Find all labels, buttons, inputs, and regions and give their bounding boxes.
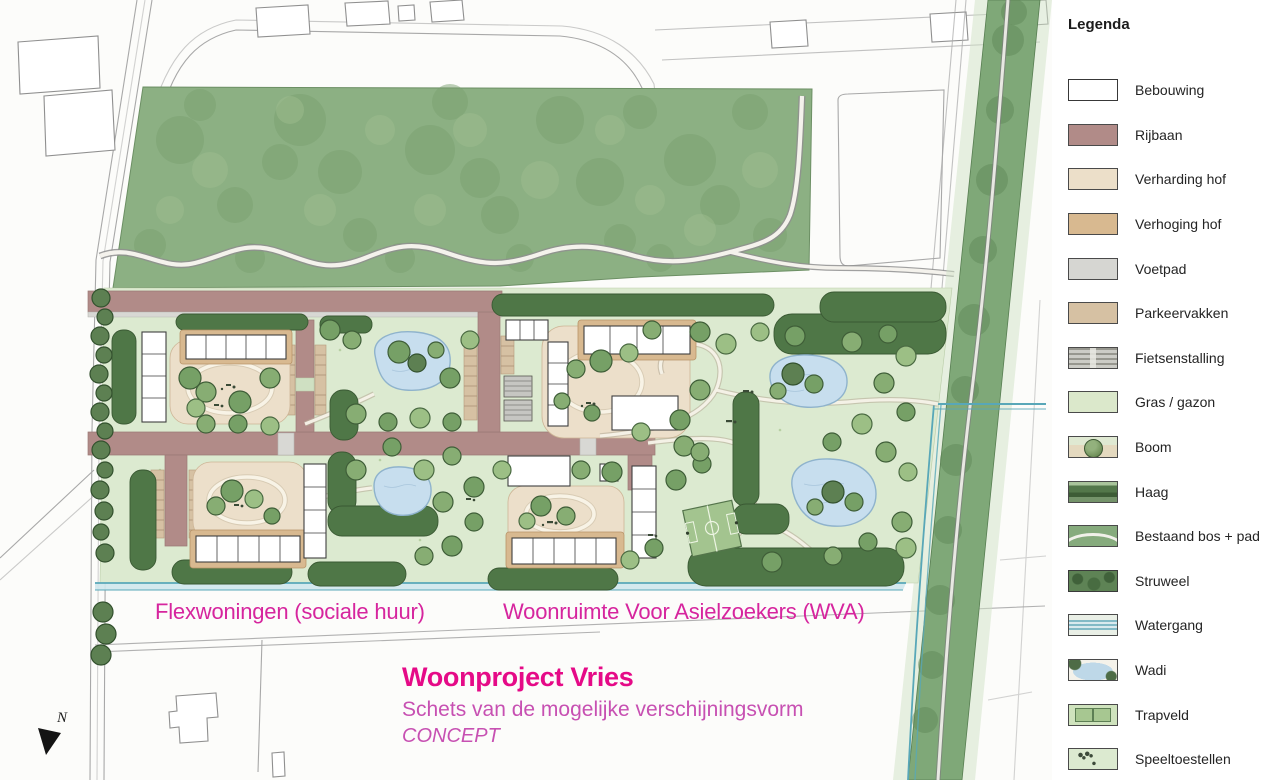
legend-swatch-wadi — [1068, 659, 1118, 681]
forest-bestaand-bos — [100, 84, 954, 288]
legend-label: Fietsenstalling — [1135, 350, 1225, 366]
area-label-wva: Woonruimte Voor Asielzoekers (WVA) — [503, 599, 865, 625]
legend-item-trapveld: Trapveld — [1068, 692, 1273, 737]
legend-swatch-speeltoestellen — [1068, 748, 1118, 770]
legend-item-wadi: Wadi — [1068, 648, 1273, 693]
legend-item-boom: Boom — [1068, 425, 1273, 470]
legend-item-struweel: Struweel — [1068, 559, 1273, 604]
legend-panel: Legenda Bebouwing Rijbaan Verharding hof… — [1052, 0, 1280, 780]
legend-item-verharding-hof: Verharding hof — [1068, 157, 1273, 202]
legend-label: Watergang — [1135, 617, 1203, 633]
legend-title: Legenda — [1068, 16, 1130, 33]
legend-swatch-verharding-hof — [1068, 168, 1118, 190]
legend-label: Verhoging hof — [1135, 216, 1221, 232]
legend-label: Rijbaan — [1135, 127, 1182, 143]
legend-swatch-fietsenstalling — [1068, 347, 1118, 369]
legend-item-watergang: Watergang — [1068, 603, 1273, 648]
legend-label: Voetpad — [1135, 261, 1186, 277]
legend-swatch-struweel — [1068, 570, 1118, 592]
legend-swatch-haag — [1068, 481, 1118, 503]
legend-label: Verharding hof — [1135, 171, 1226, 187]
legend-swatch-watergang — [1068, 614, 1118, 636]
project-subtitle: Schets van de mogelijke verschijningsvor… — [402, 698, 804, 722]
legend-item-fietsenstalling: Fietsenstalling — [1068, 336, 1273, 381]
legend-swatch-voetpad — [1068, 258, 1118, 280]
trapveld — [681, 500, 743, 557]
legend-item-voetpad: Voetpad — [1068, 246, 1273, 291]
legend-item-gras-gazon: Gras / gazon — [1068, 380, 1273, 425]
legend-swatch-boom — [1068, 436, 1118, 458]
legend-item-speeltoestellen: Speeltoestellen — [1068, 737, 1273, 780]
legend-swatch-gras-gazon — [1068, 391, 1118, 413]
legend-rows: Bebouwing Rijbaan Verharding hof Verhogi… — [1068, 68, 1273, 780]
legend-swatch-parkeervakken — [1068, 302, 1118, 324]
legend-label: Bebouwing — [1135, 82, 1204, 98]
title-block: Woonproject Vries Schets van de mogelijk… — [402, 662, 804, 748]
legend-item-haag: Haag — [1068, 469, 1273, 514]
legend-label: Boom — [1135, 439, 1172, 455]
project-title: Woonproject Vries — [402, 662, 804, 693]
compass: N — [38, 710, 68, 755]
legend-item-verhoging-hof: Verhoging hof — [1068, 202, 1273, 247]
legend-swatch-verhoging-hof — [1068, 213, 1118, 235]
legend-swatch-trapveld — [1068, 704, 1118, 726]
legend-label: Haag — [1135, 484, 1168, 500]
site-plan-canvas: N Flexwoningen (sociale huur) Woonruimte… — [0, 0, 1280, 780]
legend-label: Speeltoestellen — [1135, 751, 1231, 767]
north-arrow-icon — [38, 728, 61, 755]
legend-label: Bestaand bos + pad — [1135, 528, 1260, 544]
legend-item-bestaand-bos-pad: Bestaand bos + pad — [1068, 514, 1273, 559]
legend-label: Trapveld — [1135, 707, 1189, 723]
legend-swatch-bestaand-bos-pad — [1068, 525, 1118, 547]
legend-item-parkeervakken: Parkeervakken — [1068, 291, 1273, 336]
legend-swatch-bebouwing — [1068, 79, 1118, 101]
legend-label: Struweel — [1135, 573, 1189, 589]
legend-item-rijbaan: Rijbaan — [1068, 113, 1273, 158]
legend-label: Wadi — [1135, 662, 1166, 678]
compass-label: N — [56, 710, 68, 726]
legend-item-bebouwing: Bebouwing — [1068, 68, 1273, 113]
area-label-flexwoningen: Flexwoningen (sociale huur) — [155, 599, 425, 625]
legend-label: Gras / gazon — [1135, 394, 1215, 410]
concept-status: CONCEPT — [402, 725, 804, 748]
legend-label: Parkeervakken — [1135, 305, 1228, 321]
legend-swatch-rijbaan — [1068, 124, 1118, 146]
